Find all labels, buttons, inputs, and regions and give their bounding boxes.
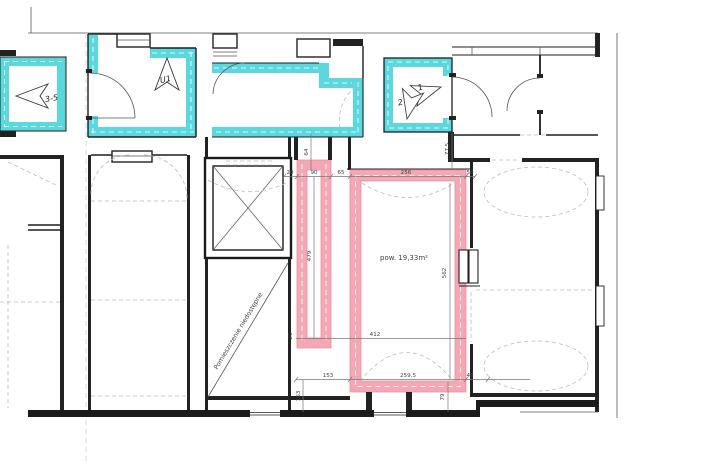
- door-frame-right: [469, 250, 478, 283]
- door-swing-pink-top: [362, 183, 454, 198]
- diagonal-line: [208, 263, 288, 397]
- dim-20-mid: 20: [288, 332, 294, 340]
- dim-153: 153: [323, 373, 334, 379]
- dim-412: 412: [370, 332, 381, 338]
- route-label-2: 2: [397, 98, 404, 108]
- dim-65: 65: [337, 170, 345, 176]
- corridor-highlight: [212, 34, 363, 137]
- room-b: [88, 151, 190, 412]
- dim-562: 562: [442, 268, 448, 279]
- wall-block-above-corridor: [297, 39, 330, 57]
- area-label: pow. 19,33m²: [380, 254, 428, 262]
- furniture-top: [484, 167, 588, 217]
- dim-259-5: 259,5: [400, 373, 416, 379]
- door-swing-lobby: [452, 77, 492, 117]
- lobby-exit: 1 2: [384, 58, 492, 132]
- dim-49: 49: [466, 373, 474, 379]
- inaccessible-label: Pomieszczenie niedostępne: [212, 291, 264, 371]
- window-top-u1: [117, 34, 150, 47]
- dim-20-top: 20: [286, 170, 294, 176]
- highlight-cyan-u1: [88, 35, 196, 137]
- dim-479: 479: [307, 250, 313, 261]
- room-left: [0, 155, 64, 412]
- room-inaccessible: Pomieszczenie niedostępne: [205, 258, 291, 412]
- pink-strip: [294, 137, 351, 348]
- escape-room-3-5: 3-5: [0, 50, 66, 137]
- dimensions: 20 90 65 256 50 64 77,5 479 562 412 20 1…: [282, 133, 530, 412]
- staircase-u1: U1: [86, 34, 196, 137]
- route-label-1: 1: [417, 83, 424, 93]
- door-swing-top-right: [507, 78, 540, 111]
- floor-plan: 3-5 U1: [0, 0, 710, 465]
- escape-arrow-3-5-icon: [16, 84, 48, 108]
- dim-163: 163: [296, 390, 302, 401]
- dim-50: 50: [466, 170, 474, 176]
- window-right-2: [596, 286, 604, 326]
- dim-79: 79: [440, 393, 446, 401]
- dim-256: 256: [401, 170, 412, 176]
- dim-77-5: 77,5: [445, 142, 451, 155]
- door-top-corridor: [213, 34, 237, 48]
- window-right-1: [596, 176, 604, 210]
- furniture-bottom: [484, 341, 588, 391]
- route-label-3-5: 3-5: [44, 93, 58, 104]
- floor-plan-canvas: 3-5 U1: [0, 0, 710, 465]
- dim-90: 90: [310, 170, 318, 176]
- highlight-pink-room: [350, 170, 466, 392]
- dim-64: 64: [304, 148, 310, 156]
- door-frame-left: [459, 250, 468, 283]
- lift-shaft: [205, 137, 291, 258]
- bottom-walls: [28, 393, 598, 417]
